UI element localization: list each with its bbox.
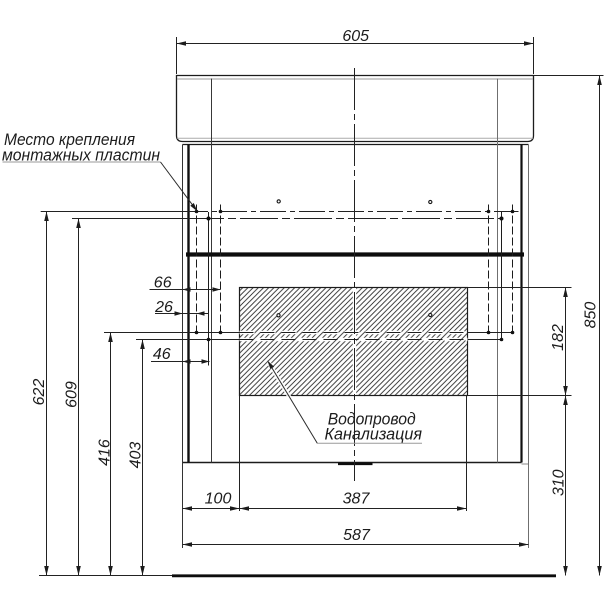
svg-text:416: 416 <box>97 439 114 466</box>
svg-text:46: 46 <box>153 346 171 363</box>
svg-text:182: 182 <box>550 324 567 351</box>
svg-text:387: 387 <box>343 491 371 508</box>
svg-text:587: 587 <box>343 527 371 544</box>
svg-text:310: 310 <box>551 469 568 496</box>
svg-text:622: 622 <box>31 379 48 406</box>
svg-text:Канализация: Канализация <box>325 426 423 444</box>
svg-text:66: 66 <box>154 275 172 292</box>
svg-text:100: 100 <box>205 491 232 508</box>
svg-text:403: 403 <box>128 442 145 469</box>
svg-text:850: 850 <box>583 302 600 329</box>
svg-text:26: 26 <box>154 299 173 316</box>
svg-text:605: 605 <box>342 28 369 45</box>
svg-text:609: 609 <box>64 381 81 408</box>
